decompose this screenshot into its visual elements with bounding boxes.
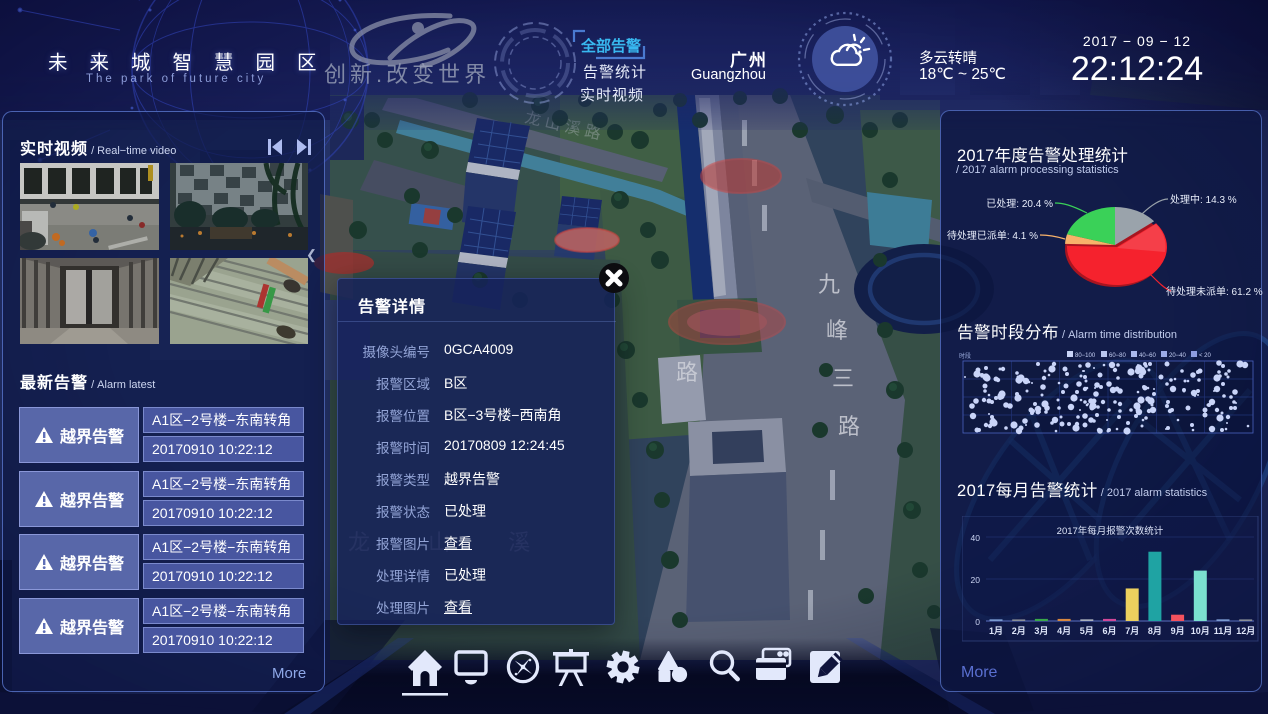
svg-text:3月: 3月 — [1034, 626, 1048, 636]
svg-text:40: 40 — [971, 533, 981, 543]
svg-text:20−40: 20−40 — [1169, 353, 1187, 359]
svg-text:已处理: 20.4 %: 已处理: 20.4 % — [986, 198, 1053, 210]
svg-text:5月: 5月 — [1080, 626, 1094, 636]
svg-text:9月: 9月 — [1171, 626, 1185, 636]
svg-text:4月: 4月 — [1057, 626, 1071, 636]
svg-text:7月: 7月 — [1125, 626, 1139, 636]
svg-text:1月: 1月 — [989, 626, 1003, 636]
svg-text:2月: 2月 — [1012, 626, 1026, 636]
svg-text:待处理已派单: 4.1 %: 待处理已派单: 4.1 % — [947, 229, 1038, 242]
svg-text:处理中: 14.3 %: 处理中: 14.3 % — [1170, 193, 1237, 206]
svg-text:8月: 8月 — [1148, 626, 1162, 636]
svg-text:11月: 11月 — [1214, 626, 1233, 636]
svg-text:时段: 时段 — [959, 352, 971, 360]
svg-text:0: 0 — [975, 617, 980, 627]
svg-text:< 20: < 20 — [1199, 353, 1212, 359]
svg-text:80−100: 80−100 — [1075, 353, 1096, 359]
svg-text:20: 20 — [971, 575, 981, 585]
svg-text:6月: 6月 — [1102, 626, 1116, 636]
svg-text:2017年每月报警次数统计: 2017年每月报警次数统计 — [1057, 525, 1164, 537]
svg-text:40−60: 40−60 — [1139, 353, 1157, 359]
svg-text:待处理未派单: 61.2 %: 待处理未派单: 61.2 % — [1166, 285, 1263, 298]
svg-text:60−80: 60−80 — [1109, 353, 1127, 359]
svg-text:12月: 12月 — [1236, 626, 1255, 636]
svg-text:10月: 10月 — [1191, 626, 1210, 636]
